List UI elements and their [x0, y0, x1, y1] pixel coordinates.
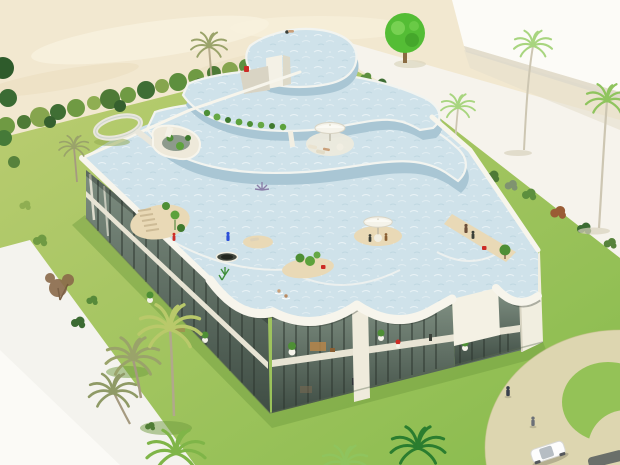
person-in-red: [173, 233, 176, 241]
interior-person: [429, 334, 432, 341]
person-in-blue: [226, 232, 229, 241]
seated-person: [385, 233, 388, 241]
interior-table: [310, 342, 326, 351]
architectural-rendering: [0, 0, 620, 465]
standing-person: [464, 224, 467, 233]
red-chair: [482, 246, 487, 250]
seated-person: [369, 234, 372, 242]
pedestrian: [531, 416, 534, 426]
terrace-table: [374, 234, 382, 242]
lounger-island: [243, 236, 273, 249]
interior-red-flowers: [396, 340, 401, 345]
pedestrian: [506, 386, 510, 396]
standing-person: [472, 231, 475, 239]
spa-pit: [217, 253, 238, 262]
red-chair: [321, 265, 326, 269]
red-chair: [244, 66, 249, 72]
roof-tree: [500, 245, 511, 256]
terrace-table: [337, 144, 344, 151]
